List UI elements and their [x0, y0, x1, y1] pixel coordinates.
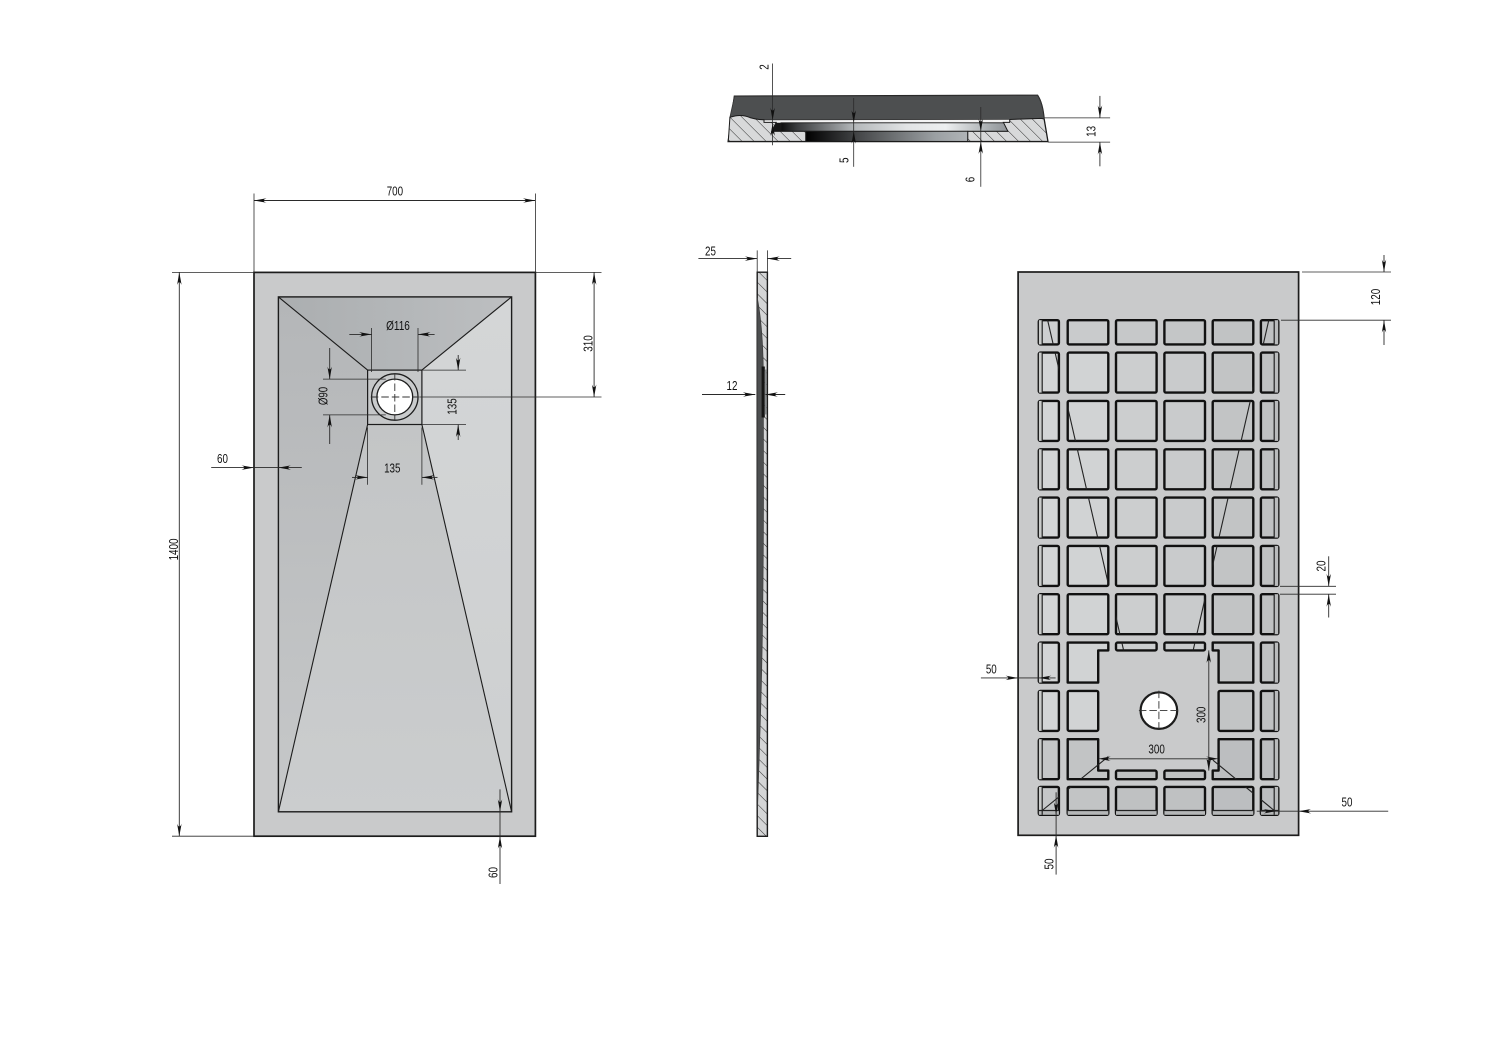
svg-text:13: 13: [1084, 126, 1099, 137]
svg-text:1400: 1400: [166, 539, 181, 561]
svg-text:Ø90: Ø90: [316, 387, 331, 405]
svg-text:700: 700: [387, 183, 403, 198]
svg-text:300: 300: [1194, 707, 1209, 723]
svg-text:50: 50: [986, 661, 997, 676]
svg-text:135: 135: [444, 398, 459, 414]
svg-text:50: 50: [1342, 794, 1353, 809]
svg-text:120: 120: [1368, 289, 1383, 305]
svg-text:6: 6: [963, 177, 978, 183]
svg-text:25: 25: [705, 244, 716, 259]
svg-text:60: 60: [217, 451, 228, 466]
svg-text:60: 60: [486, 867, 501, 878]
svg-text:300: 300: [1148, 742, 1164, 757]
svg-text:12: 12: [727, 378, 738, 393]
svg-text:2: 2: [757, 64, 772, 70]
svg-text:135: 135: [384, 460, 400, 475]
svg-text:310: 310: [580, 335, 595, 351]
svg-text:20: 20: [1313, 561, 1328, 572]
svg-text:5: 5: [837, 158, 852, 164]
svg-text:Ø116: Ø116: [386, 318, 410, 333]
svg-text:50: 50: [1042, 859, 1057, 870]
